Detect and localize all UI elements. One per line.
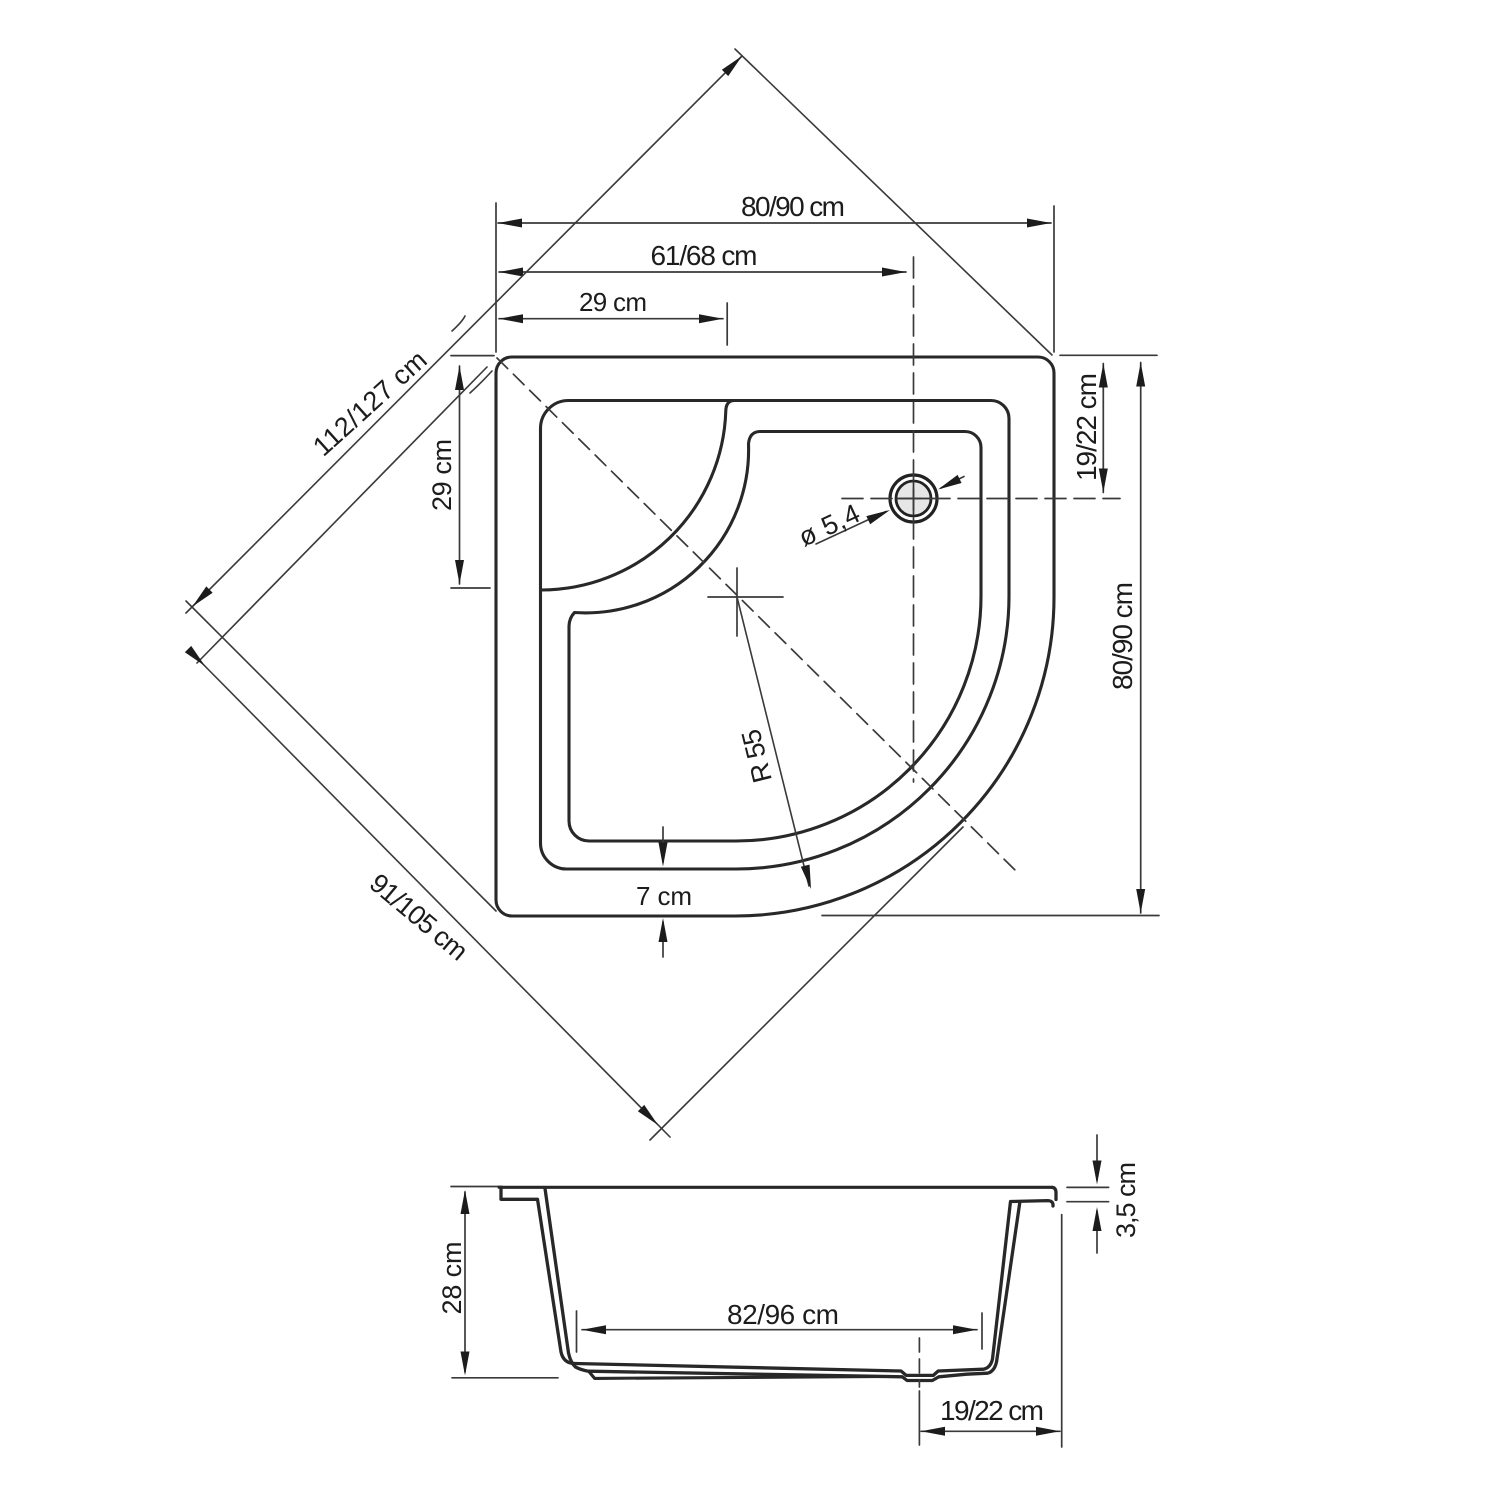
- svg-text:61/68 cm: 61/68 cm: [651, 240, 758, 271]
- svg-text:29 cm: 29 cm: [427, 439, 457, 511]
- svg-text:3,5 cm: 3,5 cm: [1111, 1162, 1141, 1238]
- svg-text:19/22 cm: 19/22 cm: [1071, 373, 1102, 481]
- svg-text:80/90 cm: 80/90 cm: [1107, 582, 1138, 690]
- svg-text:7 cm: 7 cm: [636, 881, 692, 911]
- svg-text:29 cm: 29 cm: [579, 287, 647, 317]
- svg-text:28 cm: 28 cm: [437, 1242, 467, 1315]
- svg-text:19/22 cm: 19/22 cm: [940, 1395, 1044, 1426]
- svg-text:80/90 cm: 80/90 cm: [741, 191, 845, 222]
- svg-text:82/96 cm: 82/96 cm: [727, 1299, 839, 1330]
